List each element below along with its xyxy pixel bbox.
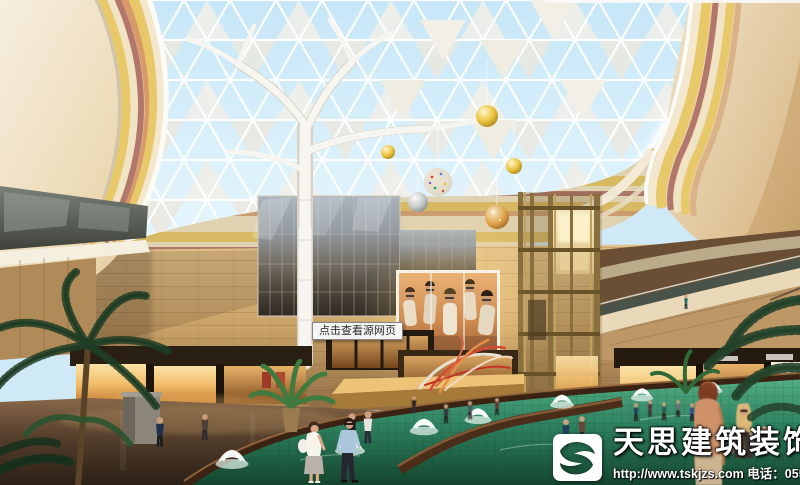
watermark-url[interactable]: http://www.tskjzs.com [613, 467, 744, 481]
watermark-company-name: 天思建筑装饰 [613, 427, 800, 460]
right-balcony [600, 230, 800, 360]
tiansi-logo-icon [553, 434, 602, 481]
confetti-sphere [424, 168, 452, 196]
mall-atrium-rendering: A|X [0, 0, 800, 485]
watermark-phone-label: 电话： [744, 467, 785, 481]
top-edge-strip [545, 0, 800, 3]
watermark-contact: http://www.tskjzs.com 电话：0551-65568226 [613, 463, 800, 482]
watermark-text: 天思建筑装饰 http://www.tskjzs.com 电话：0551-655… [613, 427, 800, 482]
watermark-phone: 0551-65568226 [785, 467, 800, 481]
screenshot-root: A|X [0, 0, 800, 485]
source-page-tooltip[interactable]: 点击查看源网页 [312, 322, 403, 340]
watermark: 天思建筑装饰 http://www.tskjzs.com 电话：0551-655… [553, 427, 800, 482]
